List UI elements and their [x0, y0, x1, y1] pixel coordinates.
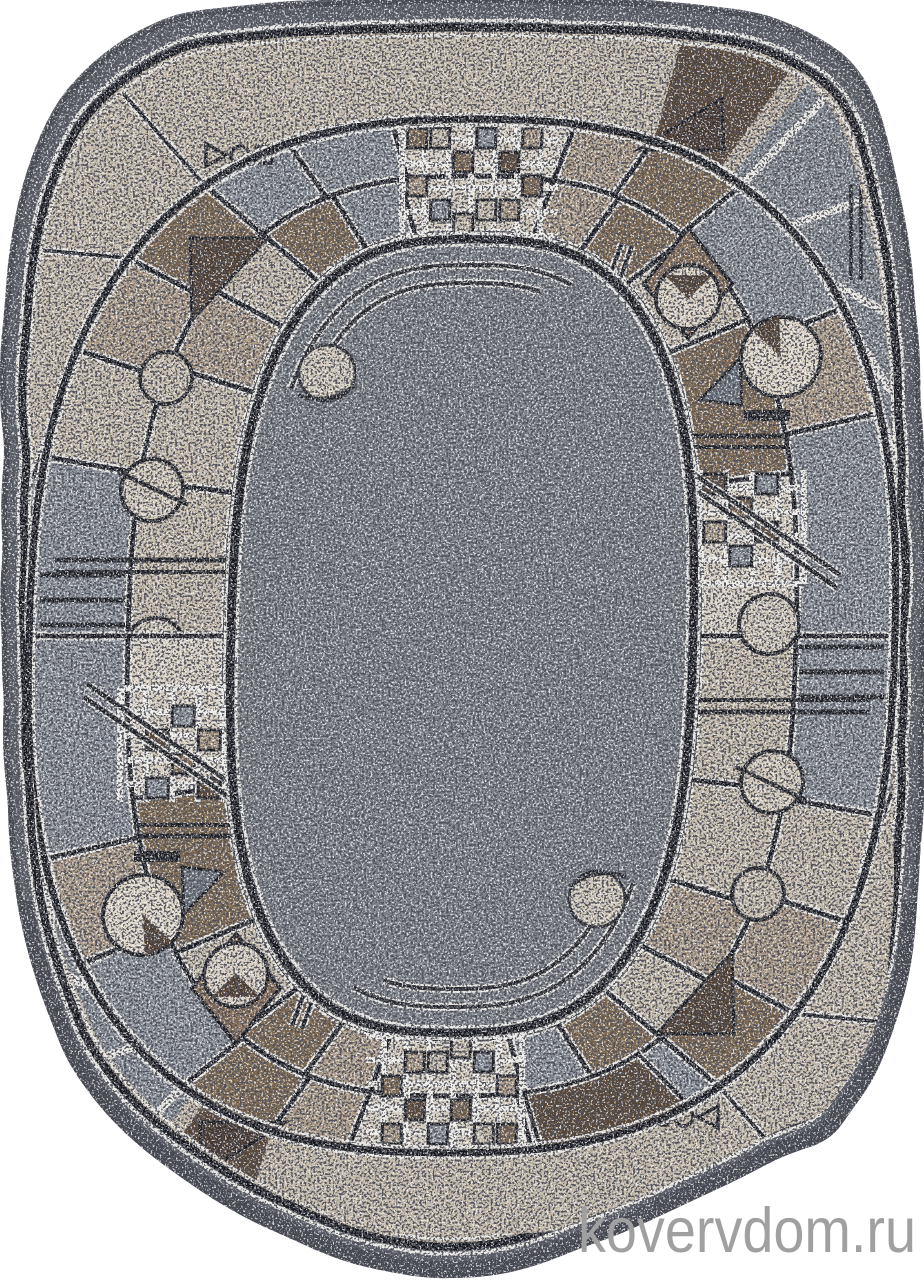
svg-text:kovervdom.ru: kovervdom.ru	[578, 1196, 916, 1266]
